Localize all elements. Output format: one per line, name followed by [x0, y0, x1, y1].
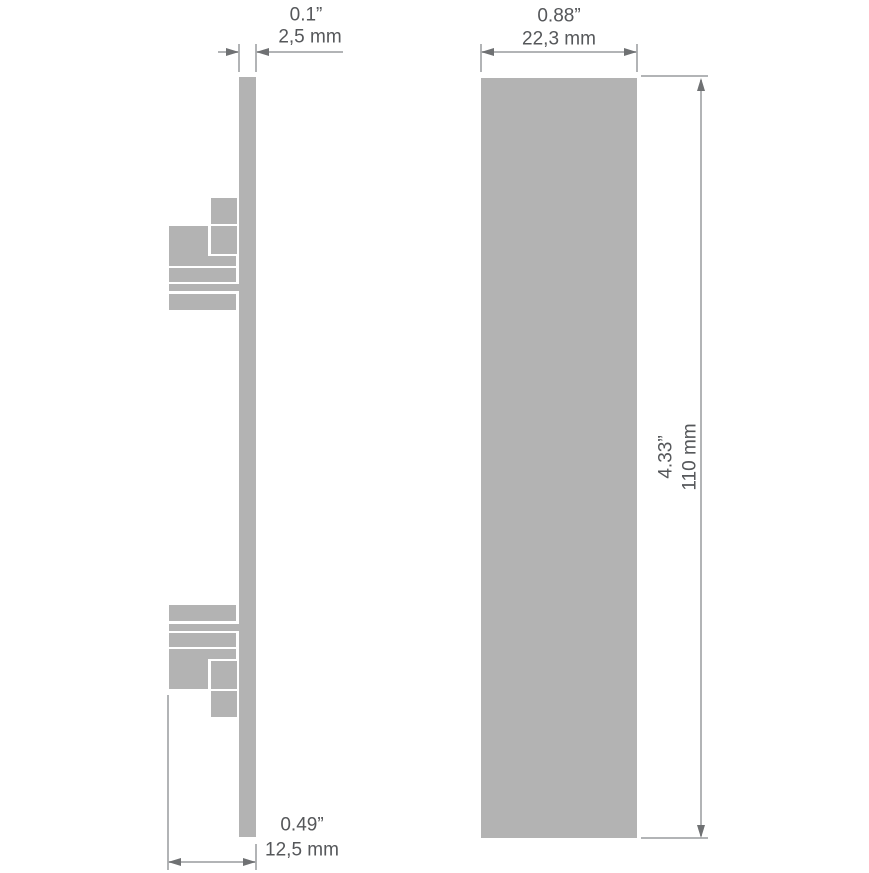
front-view-face — [481, 78, 637, 838]
bottom-clip-square — [211, 691, 237, 717]
thickness-dim-line-right — [257, 51, 343, 53]
depth-extension-line-right — [255, 844, 257, 870]
width-arrowhead-icon — [624, 48, 637, 56]
thickness-arrowhead-icon — [256, 48, 269, 56]
depth-extension-line-left — [167, 695, 169, 870]
top-clip-block-right — [211, 226, 237, 254]
width-label-mm: 22,3 mm — [522, 30, 596, 49]
top-clip-strip-2 — [169, 284, 240, 291]
bottom-clip-block-right — [211, 661, 237, 689]
technical-drawing-canvas: 0.1” 2,5 mm 0.88” 22,3 mm 4.33” 110 mm 0… — [0, 0, 869, 873]
bottom-clip-strip-2 — [169, 624, 240, 631]
thickness-label-inch: 0.1” — [290, 6, 323, 25]
top-clip-strip-3 — [169, 294, 236, 310]
height-label-inch: 4.33” — [657, 435, 676, 478]
depth-label-mm: 12,5 mm — [265, 841, 339, 860]
bottom-clip-strip-1 — [169, 633, 236, 647]
depth-arrowhead-icon — [168, 858, 181, 866]
depth-label-inch: 0.49” — [280, 816, 323, 835]
height-arrowhead-icon — [697, 78, 705, 91]
width-label-inch: 0.88” — [537, 7, 580, 26]
thickness-arrowhead-icon — [226, 48, 239, 56]
width-arrowhead-icon — [481, 48, 494, 56]
thickness-label-mm: 2,5 mm — [278, 28, 341, 47]
top-clip-foot — [169, 256, 236, 266]
bottom-clip-strip-3 — [169, 605, 236, 621]
height-label-mm: 110 mm — [681, 423, 700, 490]
side-view-back-plate — [239, 77, 256, 837]
height-arrowhead-icon — [697, 825, 705, 838]
depth-arrowhead-icon — [243, 858, 256, 866]
width-dim-line — [482, 51, 636, 53]
top-clip-strip-1 — [169, 268, 236, 282]
top-clip-square — [211, 198, 237, 224]
bottom-clip-block-left — [169, 649, 208, 689]
height-extension-line-top — [641, 75, 708, 77]
